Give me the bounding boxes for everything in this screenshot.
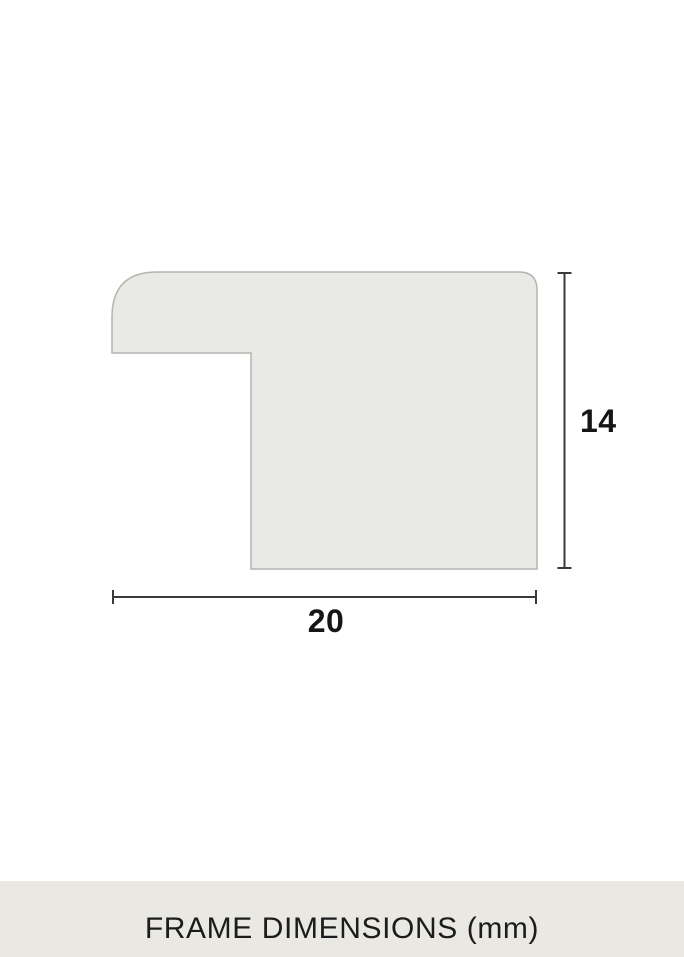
frame-profile-shape [112, 272, 537, 569]
width-dimension-label: 20 [308, 605, 345, 637]
frame-profile-diagram [0, 0, 684, 882]
height-dimension-label: 14 [580, 405, 617, 437]
width-dimension [113, 590, 536, 604]
height-dimension [558, 273, 572, 568]
page: 14 20 FRAME DIMENSIONS (mm) [0, 0, 684, 957]
footer-bar: FRAME DIMENSIONS (mm) [0, 881, 684, 957]
footer-title: FRAME DIMENSIONS (mm) [145, 914, 539, 944]
